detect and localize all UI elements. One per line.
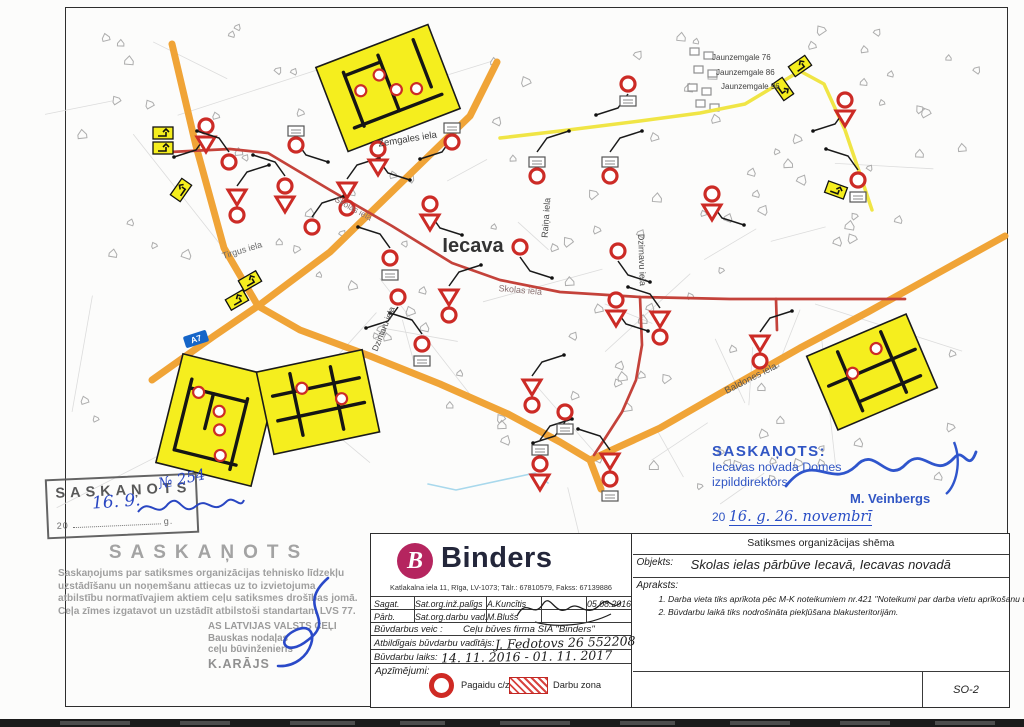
table-signatures: [511, 592, 626, 626]
detour-arrow-plate-icon: [825, 181, 848, 199]
sign-leader-anchor: [550, 276, 554, 280]
sign-leader-anchor: [626, 285, 630, 289]
detour-arrow-plate-icon: [225, 290, 248, 310]
building-footprint: [212, 111, 220, 119]
building-footprint: [833, 236, 843, 246]
temporary-sign-ring-icon: [383, 251, 397, 265]
building-footprint: [887, 70, 894, 77]
period-row: Būvdarbu laiks: 14. 11. 2016 - 01. 11. 2…: [371, 649, 631, 664]
building-footprint: [677, 32, 686, 41]
temporary-sign-ring-icon: [391, 290, 405, 304]
building-footprint: [276, 239, 282, 245]
sign-leader-line: [520, 257, 552, 278]
temporary-sign-ring-icon: [289, 138, 303, 152]
building-footprint: [274, 66, 283, 75]
temporary-sign-ring-icon: [558, 405, 572, 419]
building-footprint: [660, 372, 672, 384]
building-footprint: [690, 48, 699, 55]
building-footprint: [457, 370, 464, 377]
detail-inset-box: [256, 350, 379, 455]
sheet-number-strip: SO-2: [633, 671, 1010, 707]
sign-leader-anchor: [567, 129, 571, 133]
building-footprint: [693, 38, 699, 44]
description-item: 1. Darba vieta tiks aprīkota pēc M-K not…: [659, 593, 1010, 606]
parcel-line: [447, 159, 487, 181]
detour-arrow-plate-icon: [153, 142, 173, 154]
yield-sign-icon: [601, 454, 619, 469]
building-footprint: [290, 67, 298, 75]
building-footprint: [633, 49, 644, 60]
road-detour-route: [500, 71, 872, 210]
sign-leader-anchor: [418, 157, 422, 161]
building-footprint: [569, 330, 579, 340]
temporary-sign-ring-icon: [851, 173, 865, 187]
yield-sign-icon: [276, 197, 294, 212]
scanned-traffic-scheme-sheet: A7Zemgales ielaTirgus ielaRaiņa ielaDzir…: [0, 0, 1024, 727]
temporary-sign-ring-icon: [530, 169, 544, 183]
town-label: Iecava: [442, 235, 504, 257]
street-label: Raiņa iela: [540, 197, 553, 238]
performer-label: Būvdarbus veic :: [374, 624, 443, 634]
building-footprint: [873, 27, 882, 36]
building-footprint: [447, 402, 453, 408]
inset-background: [316, 24, 460, 151]
description-label: Apraksts:: [637, 580, 679, 591]
sign-leader-line: [390, 313, 422, 334]
building-footprint: [501, 434, 512, 445]
temporary-sign-ring-icon: [445, 135, 459, 149]
temporary-sign-ring-icon: [603, 169, 617, 183]
building-footprint: [729, 344, 737, 352]
temporary-sign-ring-icon: [305, 220, 319, 234]
temporary-sign-ring-icon: [230, 208, 244, 222]
title-block: B Binders Katlakalna iela 11, Rīga, LV-1…: [370, 533, 1010, 708]
temporary-sign-ring-icon: [278, 179, 292, 193]
building-footprint: [144, 98, 155, 109]
building-footprint: [649, 461, 658, 470]
building-footprint: [758, 203, 770, 215]
sign-leader-line: [532, 355, 564, 376]
building-footprint: [404, 305, 415, 316]
building-footprint: [549, 242, 558, 251]
building-footprint: [688, 84, 697, 91]
temporary-sign-ring-icon: [621, 77, 635, 91]
parcel-line: [771, 227, 826, 241]
address-label: Jaunzemgale 96: [721, 82, 780, 91]
sign-leader-line: [237, 165, 269, 186]
yield-sign-icon: [751, 336, 769, 351]
building-footprint: [948, 349, 956, 357]
street-label: Dzintaru iela: [370, 305, 397, 353]
building-footprint: [845, 220, 855, 230]
building-footprint: [111, 94, 121, 104]
building-footprint: [109, 249, 118, 258]
sign-leader-anchor: [562, 353, 566, 357]
parcel-line: [72, 296, 92, 412]
info-plate-icon: [414, 356, 430, 366]
info-plate-icon: [850, 192, 866, 202]
street-label: Tirgus iela: [221, 239, 263, 261]
responsible-label: Atbildīgais būvdarbu vadītājs:: [374, 638, 494, 648]
building-footprint: [773, 148, 780, 155]
temporary-sign-ring-icon: [838, 93, 852, 107]
building-footprint: [594, 303, 604, 313]
building-footprint: [234, 23, 242, 31]
building-footprint: [296, 108, 305, 117]
title-block-project-pane: Satiksmes organizācijas shēma Objekts: S…: [633, 534, 1010, 707]
legend-label: Apzīmējumi:: [375, 666, 429, 677]
parcel-line: [704, 229, 756, 260]
street-label: Skolas iela: [498, 283, 542, 297]
building-footprint: [814, 24, 826, 36]
municipal-date-line: 20 16. g. 26. novembrī: [712, 509, 982, 525]
temporary-sign-ring-icon: [603, 472, 617, 486]
address-label: Jaunzemgale 76: [712, 53, 771, 62]
detail-inset-box: [316, 24, 460, 151]
temporary-sign-ring-icon: [653, 330, 667, 344]
sign-leader-anchor: [364, 326, 368, 330]
info-plate-icon: [288, 126, 304, 136]
sign-leader-anchor: [172, 155, 176, 159]
temporary-sign-ring-icon: [429, 673, 454, 698]
company-address: Katlakalna iela 11, Rīga, LV-1073; Tālr.…: [371, 583, 631, 592]
detour-plate-bg: [153, 127, 173, 139]
building-footprint: [419, 286, 427, 294]
sign-leader-anchor: [195, 129, 199, 133]
building-footprint: [586, 188, 598, 200]
scan-artifact-band: [0, 719, 1024, 727]
sign-leader-anchor: [408, 178, 412, 182]
detour-arrow-plate-icon: [153, 127, 173, 139]
object-label: Objekts:: [637, 557, 674, 568]
object-value: Skolas ielas pārbūve Iecavā, Iecavas nov…: [633, 551, 1010, 572]
building-footprint: [519, 75, 531, 87]
veinbergs-signature: [778, 428, 988, 508]
agreement-title: SASKAŅOTS: [58, 542, 360, 564]
info-plate-icon: [557, 424, 573, 434]
building-footprint: [150, 241, 157, 248]
yield-sign-icon: [228, 190, 246, 205]
building-footprint: [973, 65, 982, 74]
building-footprint: [569, 390, 579, 400]
sign-leader-anchor: [646, 329, 650, 333]
sign-leader-anchor: [824, 147, 828, 151]
period-label: Būvdarbu laiks:: [374, 652, 438, 662]
description-item: 2. Būvdarbu laikā tiks nodrošināta piekļ…: [659, 606, 1010, 619]
building-footprint: [696, 100, 705, 107]
arajs-signature: [250, 570, 370, 675]
building-footprint: [807, 40, 816, 49]
building-footprint: [181, 248, 192, 259]
building-footprint: [592, 225, 601, 234]
handwritten-stamp-date: 16. g. 26. novembrī: [729, 509, 872, 526]
sign-leader-anchor: [356, 225, 360, 229]
object-row: Objekts: Skolas ielas pārbūve Iecavā, Ie…: [633, 551, 1010, 578]
sign-leader-anchor: [790, 309, 794, 313]
sign-leader-anchor: [531, 441, 535, 445]
sign-leader-anchor: [742, 223, 746, 227]
building-footprint: [796, 173, 808, 185]
building-footprint: [747, 167, 756, 176]
title-block-company-pane: B Binders Katlakalna iela 11, Rīga, LV-1…: [371, 534, 632, 707]
temporary-sign-ring-icon: [609, 293, 623, 307]
building-footprint: [894, 215, 903, 224]
info-plate-icon: [382, 270, 398, 280]
building-footprint: [916, 149, 924, 157]
parcel-line: [178, 67, 327, 116]
sign-leader-anchor: [576, 427, 580, 431]
building-footprint: [652, 193, 661, 202]
building-footprint: [401, 239, 409, 247]
building-footprint: [77, 129, 87, 139]
detour-plate-bg: [825, 181, 848, 199]
sign-leader-anchor: [640, 129, 644, 133]
parcel-line: [656, 429, 683, 477]
building-footprint: [117, 39, 124, 46]
building-footprint: [710, 113, 720, 123]
inset-sign-circle: [295, 382, 308, 395]
building-footprint: [752, 189, 760, 197]
temporary-sign-ring-icon: [513, 240, 527, 254]
description-block: Apraksts: 1. Darba vieta tiks aprīkota p…: [633, 578, 1010, 670]
legend-item-label: Darbu zona: [553, 680, 601, 690]
handwriting-scribble: [130, 490, 250, 526]
building-footprint: [694, 66, 703, 73]
info-plate-icon: [529, 157, 545, 167]
temporary-sign-ring-icon: [611, 244, 625, 258]
building-footprint: [758, 383, 765, 390]
temporary-sign-ring-icon: [415, 337, 429, 351]
info-plate-icon: [444, 123, 460, 133]
legend-row: Apzīmējumi: Pagaidu c/z Darbu zona: [371, 663, 631, 708]
detour-arrow-plate-icon: [170, 178, 191, 201]
temporary-sign-ring-icon: [525, 398, 539, 412]
building-footprint: [846, 232, 858, 244]
sheet-number: SO-2: [922, 672, 1009, 707]
parcel-line: [153, 42, 227, 79]
info-plate-icon: [602, 157, 618, 167]
building-footprint: [946, 55, 951, 60]
building-footprint: [861, 45, 868, 52]
building-footprint: [860, 78, 867, 85]
building-footprint: [617, 371, 627, 381]
info-plate-icon: [620, 96, 636, 106]
building-footprint: [958, 143, 966, 151]
binders-logo-icon: B: [397, 543, 433, 579]
building-footprint: [696, 482, 703, 489]
road-construction-stub: [776, 299, 777, 330]
detour-plate-bg: [153, 142, 173, 154]
sign-leader-anchor: [267, 163, 271, 167]
sign-leader-anchor: [479, 263, 483, 267]
road-baldones-diagonal: [590, 236, 1005, 460]
building-footprint: [420, 322, 430, 332]
building-footprint: [291, 244, 300, 253]
sign-leader-anchor: [251, 153, 255, 157]
building-footprint: [92, 415, 99, 422]
performer-value: Ceļu būves firma SIA "Binders": [463, 624, 595, 635]
sign-leader-line: [358, 227, 390, 248]
building-footprint: [791, 133, 802, 144]
building-footprint: [80, 395, 89, 404]
detour-plate-bg: [170, 178, 191, 201]
building-footprint: [491, 223, 497, 229]
sign-leader-line: [610, 131, 642, 152]
building-footprint: [228, 30, 235, 37]
building-footprint: [561, 235, 573, 247]
info-plate-icon: [602, 491, 618, 501]
building-footprint: [510, 155, 516, 161]
temporary-sign-ring-icon: [442, 308, 456, 322]
temporary-sign-ring-icon: [423, 197, 437, 211]
building-footprint: [124, 56, 133, 65]
building-footprint: [649, 132, 659, 142]
temporary-sign-ring-icon: [222, 155, 236, 169]
building-footprint: [879, 99, 885, 105]
info-plate-icon: [532, 445, 548, 455]
work-zone-hatch-icon: [509, 677, 548, 694]
legend-item-label: Pagaidu c/z: [461, 680, 510, 690]
address-label: Jaunzemgale 86: [716, 68, 775, 77]
building-footprint: [101, 33, 110, 42]
building-footprint: [615, 360, 625, 370]
building-footprint: [347, 280, 358, 291]
building-footprint: [316, 271, 322, 277]
sign-leader-anchor: [594, 113, 598, 117]
temporary-sign-ring-icon: [199, 119, 213, 133]
building-footprint: [850, 212, 858, 220]
yield-sign-icon: [440, 290, 458, 305]
company-name: Binders: [441, 542, 552, 575]
building-footprint: [127, 218, 135, 226]
parcel-line: [402, 320, 413, 361]
building-footprint: [777, 416, 784, 423]
sign-leader-anchor: [326, 160, 330, 164]
building-footprint: [784, 159, 793, 168]
temporary-sign-ring-icon: [533, 457, 547, 471]
building-footprint: [492, 115, 502, 125]
parcel-line: [45, 101, 113, 115]
building-footprint: [758, 428, 768, 438]
temporary-sign-ring-icon: [705, 187, 719, 201]
street-label: Dzirnavu iela: [636, 234, 648, 286]
yield-sign-icon: [651, 312, 669, 327]
building-footprint: [613, 378, 622, 387]
parcel-line: [835, 163, 933, 168]
building-footprint: [717, 266, 724, 273]
building-footprint: [702, 88, 711, 95]
sign-leader-anchor: [811, 129, 815, 133]
detour-plate-bg: [225, 290, 248, 310]
inset-sign-circle: [335, 392, 348, 405]
